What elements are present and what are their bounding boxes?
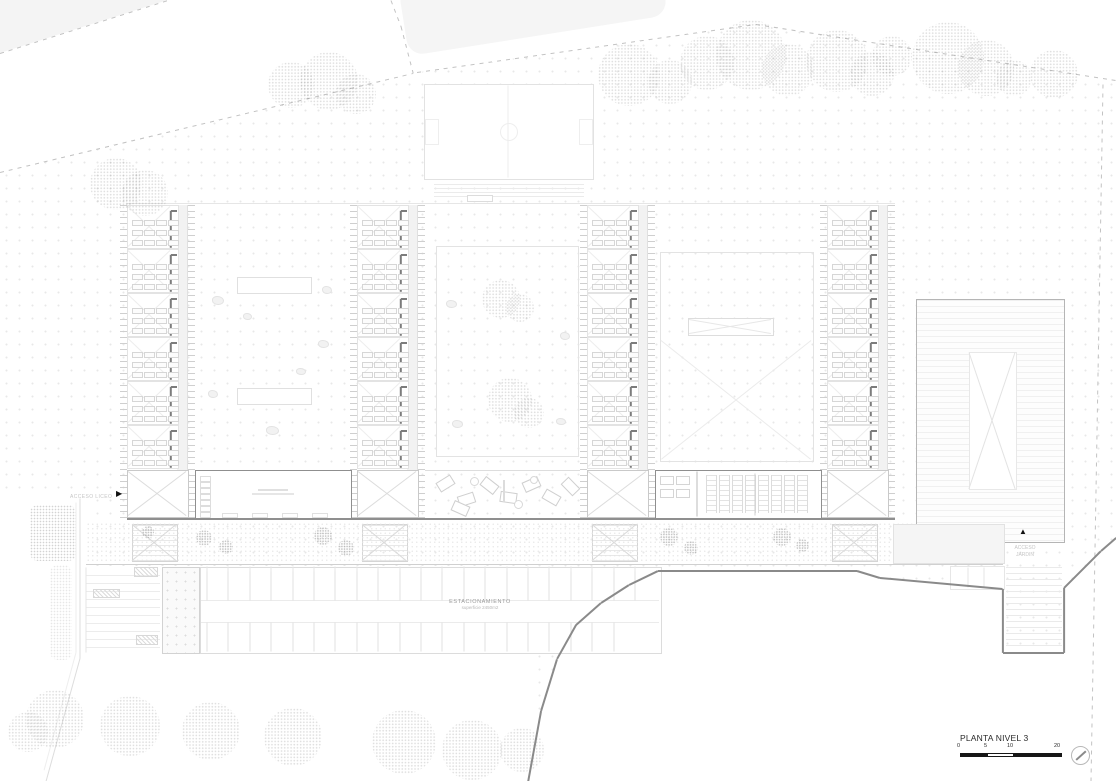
- desk: [168, 396, 179, 402]
- rock: [318, 340, 329, 348]
- desk: [856, 328, 867, 334]
- classroom-wall: [631, 386, 638, 388]
- desk: [832, 220, 843, 226]
- parking-stall: [249, 623, 250, 652]
- desk: [844, 416, 855, 422]
- desk: [628, 372, 639, 378]
- desk: [616, 308, 627, 314]
- desk: [168, 362, 179, 368]
- desk: [832, 284, 843, 290]
- walkway-lower-edge: [86, 564, 1003, 565]
- classroom-wall: [871, 342, 878, 344]
- parking-stall: [528, 570, 529, 601]
- desk: [386, 230, 397, 236]
- desk: [592, 240, 603, 246]
- plan-geometry: [0, 0, 1116, 781]
- grid-tick: [249, 567, 250, 572]
- desk: [868, 308, 879, 314]
- rock: [446, 300, 457, 308]
- desk: [868, 372, 879, 378]
- desk: [132, 318, 143, 324]
- classroom-wall: [171, 386, 178, 388]
- desk: [398, 406, 409, 412]
- terrain-contour: [1063, 588, 1065, 653]
- desk: [628, 308, 639, 314]
- desk: [168, 352, 179, 358]
- desk: [844, 328, 855, 334]
- tree: [1030, 50, 1078, 98]
- desk: [362, 450, 373, 456]
- reading-table-row: [719, 475, 730, 513]
- bleacher-line: [434, 192, 584, 193]
- desk: [832, 450, 843, 456]
- desk: [144, 328, 155, 334]
- desk: [832, 274, 843, 280]
- desk: [604, 220, 615, 226]
- desk: [592, 450, 603, 456]
- classroom-wall: [401, 254, 408, 256]
- desk: [362, 220, 373, 226]
- desk: [604, 406, 615, 412]
- site-boundary: [391, 0, 402, 26]
- desk: [628, 220, 639, 226]
- tree: [8, 712, 48, 752]
- floor-plan-canvas: ACCESO LICEO ▶ ACCESO JARDIN ▲ ESTACIONA…: [0, 0, 1116, 781]
- parking-stall: [292, 570, 293, 601]
- hedge: [50, 565, 72, 660]
- tree: [372, 710, 436, 774]
- desk: [616, 450, 627, 456]
- desk: [156, 230, 167, 236]
- classroom-wall: [171, 254, 178, 256]
- desk: [132, 328, 143, 334]
- court-center-circle: [500, 123, 518, 141]
- grid-tick: [314, 567, 315, 572]
- desk: [844, 284, 855, 290]
- desk: [832, 406, 843, 412]
- parking-lane-line: [86, 631, 160, 632]
- desk: [616, 460, 627, 466]
- parking-edge: [86, 568, 87, 653]
- shrub: [338, 540, 354, 556]
- desk: [144, 352, 155, 358]
- reading-table-row: [758, 475, 769, 513]
- desk: [132, 240, 143, 246]
- desk: [628, 396, 639, 402]
- speed-bump: [93, 589, 120, 598]
- bleacher-stair: [467, 195, 493, 202]
- parking-stall: [506, 623, 507, 652]
- desk: [592, 328, 603, 334]
- desk: [832, 264, 843, 270]
- road-edge: [80, 499, 81, 659]
- planter: [470, 477, 479, 486]
- desk: [868, 416, 879, 422]
- shrub: [660, 528, 678, 546]
- tree: [336, 74, 376, 114]
- desk: [362, 240, 373, 246]
- grid-tick: [613, 567, 614, 572]
- desk: [628, 328, 639, 334]
- desk: [856, 352, 867, 358]
- classroom-wall: [171, 210, 178, 212]
- desk: [616, 220, 627, 226]
- desk: [398, 440, 409, 446]
- desk: [168, 318, 179, 324]
- desk: [844, 240, 855, 246]
- roof-edge-band: [127, 518, 895, 521]
- desk: [616, 406, 627, 412]
- desk: [628, 362, 639, 368]
- parking-stall: [528, 623, 529, 652]
- desk: [628, 416, 639, 422]
- desk: [386, 328, 397, 334]
- desk: [386, 362, 397, 368]
- desk: [628, 274, 639, 280]
- desk: [168, 264, 179, 270]
- desk: [386, 450, 397, 456]
- tree: [872, 36, 912, 76]
- desk: [398, 308, 409, 314]
- desk: [832, 372, 843, 378]
- desk: [362, 362, 373, 368]
- classroom-wall: [871, 298, 878, 300]
- desk: [868, 440, 879, 446]
- desk: [604, 274, 615, 280]
- bleacher-line: [434, 188, 584, 189]
- tree: [996, 60, 1032, 96]
- desk: [386, 274, 397, 280]
- desk: [386, 318, 397, 324]
- grid-tick: [399, 567, 400, 572]
- desk: [604, 284, 615, 290]
- desk: [844, 396, 855, 402]
- grid-tick: [207, 567, 208, 572]
- desk: [386, 220, 397, 226]
- desk: [386, 416, 397, 422]
- classroom-wall: [871, 254, 878, 256]
- library-table: [660, 489, 674, 498]
- desk: [592, 352, 603, 358]
- desk: [592, 416, 603, 422]
- tree: [506, 294, 534, 322]
- access-garden-label: ACCESO JARDIN: [1000, 545, 1050, 558]
- desk: [374, 406, 385, 412]
- classroom-wall: [171, 298, 178, 300]
- desk: [156, 406, 167, 412]
- access-garden-line2: JARDIN: [1000, 552, 1050, 559]
- desk: [168, 274, 179, 280]
- desk: [144, 230, 155, 236]
- landing-joint: [984, 568, 985, 588]
- desk: [156, 318, 167, 324]
- desk: [386, 396, 397, 402]
- desk: [156, 352, 167, 358]
- desk: [604, 308, 615, 314]
- desk: [844, 362, 855, 368]
- desk: [156, 220, 167, 226]
- parking-stall: [570, 570, 571, 601]
- library-table: [676, 489, 690, 498]
- desk: [386, 372, 397, 378]
- desk: [398, 220, 409, 226]
- grid-tick: [421, 567, 422, 572]
- desk: [132, 352, 143, 358]
- classroom-wall: [871, 386, 878, 388]
- parking-stall: [249, 570, 250, 601]
- desk: [628, 352, 639, 358]
- desk: [832, 460, 843, 466]
- shrub: [314, 527, 332, 545]
- parking-stall: [207, 623, 208, 652]
- desk: [592, 460, 603, 466]
- desk: [604, 318, 615, 324]
- desk: [168, 416, 179, 422]
- desk: [844, 308, 855, 314]
- desk: [868, 362, 879, 368]
- desk: [616, 284, 627, 290]
- desk: [168, 220, 179, 226]
- desk: [374, 230, 385, 236]
- classroom-wall: [631, 210, 638, 212]
- desk: [832, 362, 843, 368]
- desk: [398, 450, 409, 456]
- desk: [374, 460, 385, 466]
- desk: [132, 274, 143, 280]
- desk: [362, 328, 373, 334]
- desk: [856, 264, 867, 270]
- parking-lane-line: [86, 647, 160, 648]
- desk: [844, 264, 855, 270]
- desk: [868, 274, 879, 280]
- library-table: [660, 476, 674, 485]
- desk: [144, 308, 155, 314]
- desk: [144, 440, 155, 446]
- desk: [362, 372, 373, 378]
- desk: [592, 362, 603, 368]
- desk: [616, 416, 627, 422]
- desk: [398, 230, 409, 236]
- rock: [296, 368, 306, 375]
- desk: [132, 460, 143, 466]
- rock: [208, 390, 218, 398]
- desk: [362, 396, 373, 402]
- gym-entry-walk: [893, 524, 1005, 564]
- desk: [386, 460, 397, 466]
- desk: [362, 230, 373, 236]
- desk: [374, 372, 385, 378]
- grid-tick: [356, 567, 357, 572]
- desk: [132, 396, 143, 402]
- desk: [832, 240, 843, 246]
- desk: [856, 440, 867, 446]
- desk: [398, 352, 409, 358]
- desk: [592, 284, 603, 290]
- grid-tick: [528, 567, 529, 572]
- classroom-wall: [401, 298, 408, 300]
- access-liceo-arrow-icon: ▶: [116, 489, 122, 498]
- desk: [398, 284, 409, 290]
- desk: [592, 308, 603, 314]
- desk: [616, 396, 627, 402]
- court-key: [579, 119, 593, 145]
- parking-lane-line: [86, 607, 160, 608]
- desk: [604, 416, 615, 422]
- desk: [362, 352, 373, 358]
- desk: [132, 264, 143, 270]
- desk: [604, 362, 615, 368]
- courtyard-table: [237, 277, 312, 294]
- grid-tick: [635, 567, 636, 572]
- garden-stair: [1006, 567, 1062, 651]
- desk: [604, 396, 615, 402]
- desk: [856, 396, 867, 402]
- parking-stall: [356, 570, 357, 601]
- parking-stall: [635, 570, 636, 601]
- desk: [398, 328, 409, 334]
- desk: [604, 264, 615, 270]
- desk: [398, 460, 409, 466]
- tree: [182, 702, 240, 760]
- desk: [168, 372, 179, 378]
- desk: [374, 352, 385, 358]
- parking-stall: [421, 623, 422, 652]
- desk: [398, 396, 409, 402]
- desk: [144, 372, 155, 378]
- terrain-contour: [1003, 652, 1064, 654]
- desk: [604, 460, 615, 466]
- desk: [132, 406, 143, 412]
- grid-tick: [292, 567, 293, 572]
- classroom-wall: [631, 342, 638, 344]
- speed-bump: [136, 635, 158, 645]
- courtyard-table: [237, 388, 312, 405]
- desk: [628, 284, 639, 290]
- scale-bar-segment-2: [987, 753, 1014, 757]
- shrub: [219, 540, 233, 554]
- desk: [132, 372, 143, 378]
- desk: [844, 406, 855, 412]
- desk: [132, 308, 143, 314]
- desk: [868, 450, 879, 456]
- desk: [144, 284, 155, 290]
- desk: [374, 220, 385, 226]
- wing-louvers-left: [580, 205, 587, 518]
- parking-stall: [399, 623, 400, 652]
- classroom-wall: [631, 254, 638, 256]
- desk: [362, 274, 373, 280]
- desk: [132, 284, 143, 290]
- classroom-wall: [401, 210, 408, 212]
- parking-lane-line: [86, 615, 160, 616]
- classroom-wall: [871, 210, 878, 212]
- desk: [156, 460, 167, 466]
- desk: [844, 352, 855, 358]
- desk: [604, 440, 615, 446]
- desk: [362, 264, 373, 270]
- parking-stall: [207, 570, 208, 601]
- desk: [844, 450, 855, 456]
- desk: [144, 362, 155, 368]
- tree: [514, 398, 544, 428]
- desk: [374, 396, 385, 402]
- reading-table-row: [732, 475, 743, 513]
- library-partition: [697, 472, 698, 517]
- desk: [844, 440, 855, 446]
- desk: [592, 318, 603, 324]
- parking-stall: [356, 623, 357, 652]
- desk: [398, 362, 409, 368]
- classroom-wall: [871, 430, 878, 432]
- classroom-wall: [401, 342, 408, 344]
- wing-louvers-left: [120, 205, 127, 518]
- desk: [168, 460, 179, 466]
- desk: [628, 264, 639, 270]
- desk: [374, 264, 385, 270]
- parking-stall: [570, 623, 571, 652]
- desk: [132, 440, 143, 446]
- desk: [868, 220, 879, 226]
- tree: [500, 728, 544, 772]
- desk: [604, 352, 615, 358]
- desk: [398, 264, 409, 270]
- desk: [386, 284, 397, 290]
- desk: [398, 240, 409, 246]
- classroom-wall: [171, 342, 178, 344]
- desk: [868, 284, 879, 290]
- desk: [616, 352, 627, 358]
- desk: [374, 416, 385, 422]
- desk: [168, 450, 179, 456]
- desk: [362, 440, 373, 446]
- desk: [592, 264, 603, 270]
- terrain-contour: [1002, 589, 1004, 653]
- desk: [856, 372, 867, 378]
- desk: [156, 264, 167, 270]
- court-key: [425, 119, 439, 145]
- classroom-wall: [401, 430, 408, 432]
- desk: [832, 396, 843, 402]
- parking-stall: [463, 570, 464, 601]
- desk: [156, 328, 167, 334]
- shrub: [796, 539, 809, 552]
- classroom-wall: [401, 386, 408, 388]
- desk: [386, 352, 397, 358]
- desk: [386, 240, 397, 246]
- desk: [374, 450, 385, 456]
- desk: [168, 328, 179, 334]
- desk: [868, 328, 879, 334]
- rock: [212, 296, 224, 305]
- desk: [156, 450, 167, 456]
- desk: [374, 308, 385, 314]
- desk: [616, 328, 627, 334]
- desk: [144, 416, 155, 422]
- access-liceo-label: ACCESO LICEO: [70, 494, 112, 500]
- desk: [592, 230, 603, 236]
- desk: [604, 230, 615, 236]
- rock: [322, 286, 332, 294]
- speed-bump: [134, 567, 158, 577]
- desk: [592, 274, 603, 280]
- scale-bar-segment-3: [1014, 753, 1062, 757]
- desk: [592, 440, 603, 446]
- grid-tick: [506, 567, 507, 572]
- parking-lane-line: [86, 583, 160, 584]
- tree: [442, 720, 502, 780]
- reading-table-row: [784, 475, 795, 513]
- rock: [556, 418, 566, 425]
